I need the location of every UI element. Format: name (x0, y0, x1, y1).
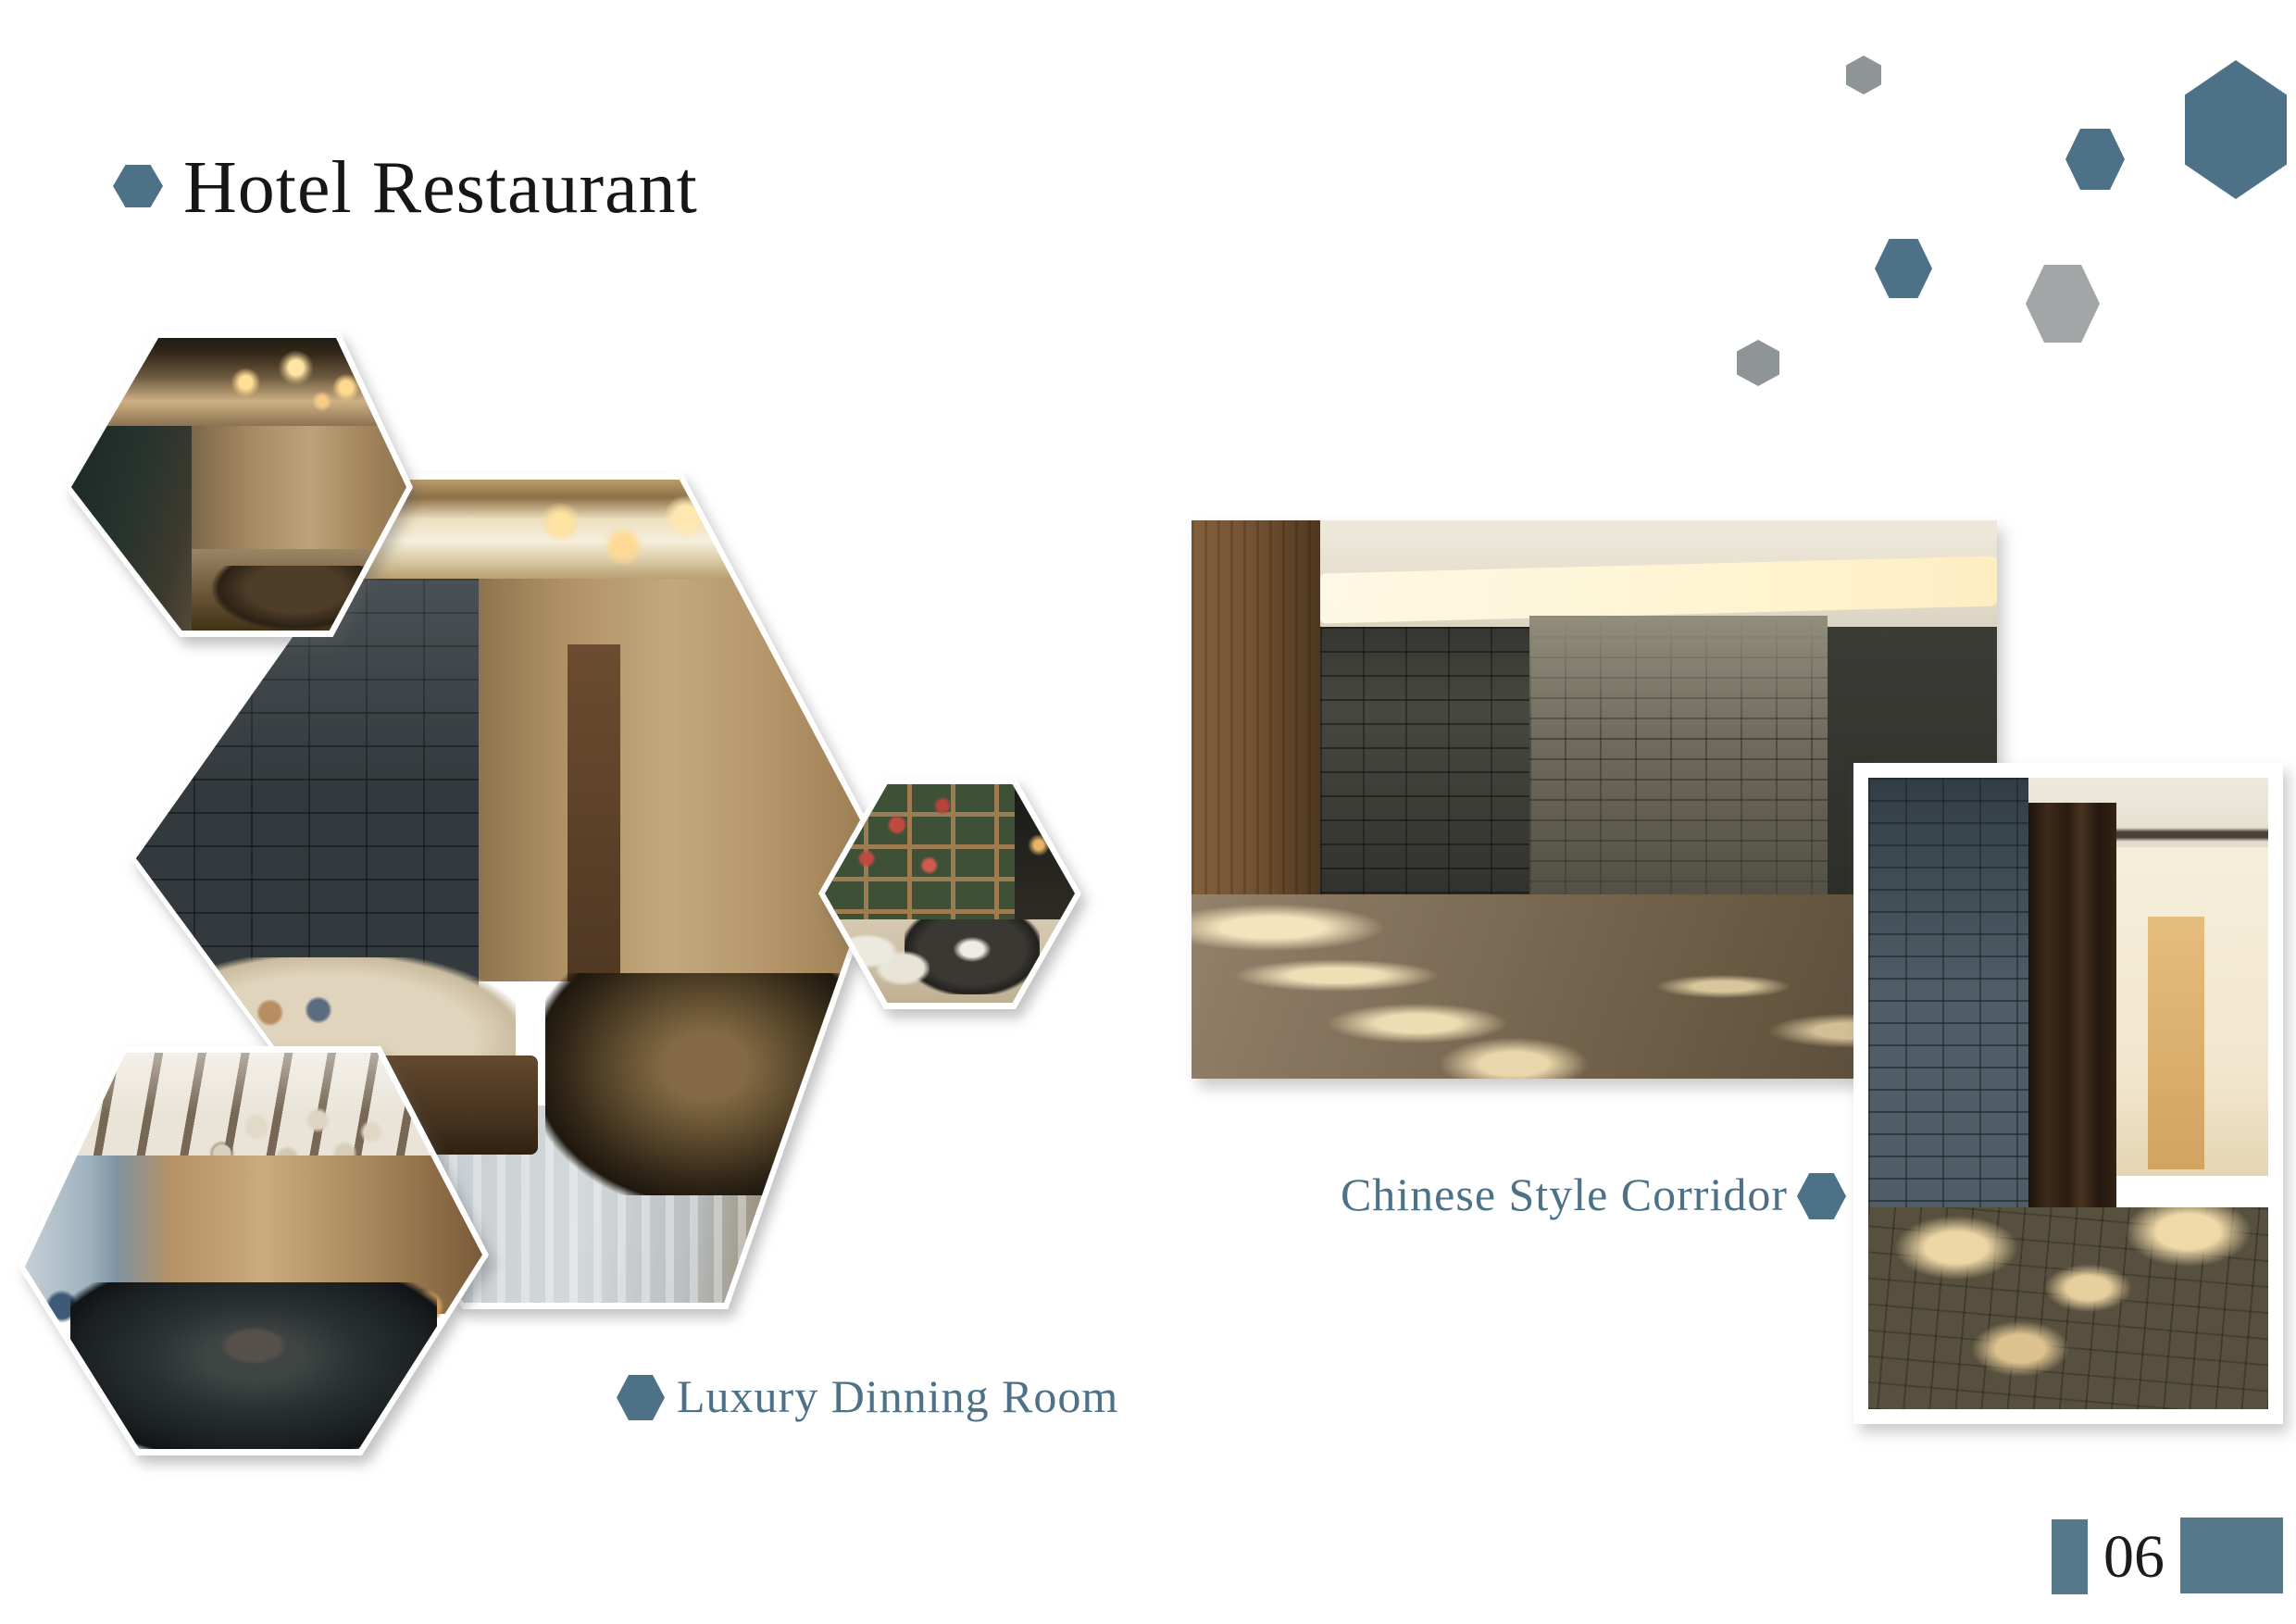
footer-rect-small (2052, 1519, 2088, 1594)
decorative-hexagon-icon (2065, 129, 2125, 190)
photo-region-plant-shelves (825, 784, 1015, 919)
photo-region-round-table (70, 1282, 436, 1449)
photo-round-table-dining-hex (19, 1046, 489, 1455)
decorative-hexagon-icon (2185, 60, 2287, 199)
photo-region-side-tables (840, 929, 930, 985)
decorative-hexagon-icon (1737, 340, 1779, 386)
photo-corridor-doors (1868, 778, 2268, 1409)
photo-region-door (568, 644, 619, 981)
photo-frame (65, 331, 413, 637)
caption-hexagon-icon (1797, 1173, 1846, 1219)
photo-frame (818, 778, 1081, 1009)
caption-hexagon-icon (617, 1375, 665, 1420)
photo-private-dining-hex (65, 331, 413, 637)
photo-tea-room-hex (818, 778, 1081, 1009)
photo-region-round-table (212, 566, 380, 631)
footer-rect-large (2180, 1518, 2283, 1593)
page-number: 06 (2088, 1519, 2180, 1595)
photo-region-lit-door (2148, 917, 2203, 1169)
photo-region-stone-wall-far (1529, 616, 1828, 929)
photo-region-wood-wall (192, 426, 406, 549)
caption-dining-room: Luxury Dinning Room (677, 1371, 1118, 1422)
photo-region-mirror-wall (71, 426, 192, 631)
photo-image (25, 1053, 482, 1449)
photo-image (825, 784, 1075, 1003)
photo-region-stone-wall (1868, 778, 2028, 1207)
brochure-page: Hotel Restaurant (0, 0, 2296, 1624)
photo-region-wood-doors (2028, 803, 2116, 1257)
photo-region-tiled-floor (1868, 1207, 2268, 1409)
decorative-hexagon-icon (1875, 239, 1932, 298)
decorative-hexagon-icon (2026, 265, 2100, 343)
photo-region-stone-wall-near (1320, 627, 1529, 894)
photo-region-dark-wall (1015, 784, 1075, 919)
photo-region-chandelier (206, 338, 406, 437)
caption-corridor: Chinese Style Corridor (1296, 1169, 1788, 1220)
photo-frame (19, 1046, 489, 1455)
title-hexagon-icon (113, 165, 163, 207)
decorative-hexagon-icon (1846, 56, 1881, 94)
photo-corridor-doors-frame (1853, 763, 2283, 1424)
page-title: Hotel Restaurant (183, 151, 698, 225)
photo-image (71, 338, 406, 631)
photo-region-chandelier (523, 480, 836, 587)
